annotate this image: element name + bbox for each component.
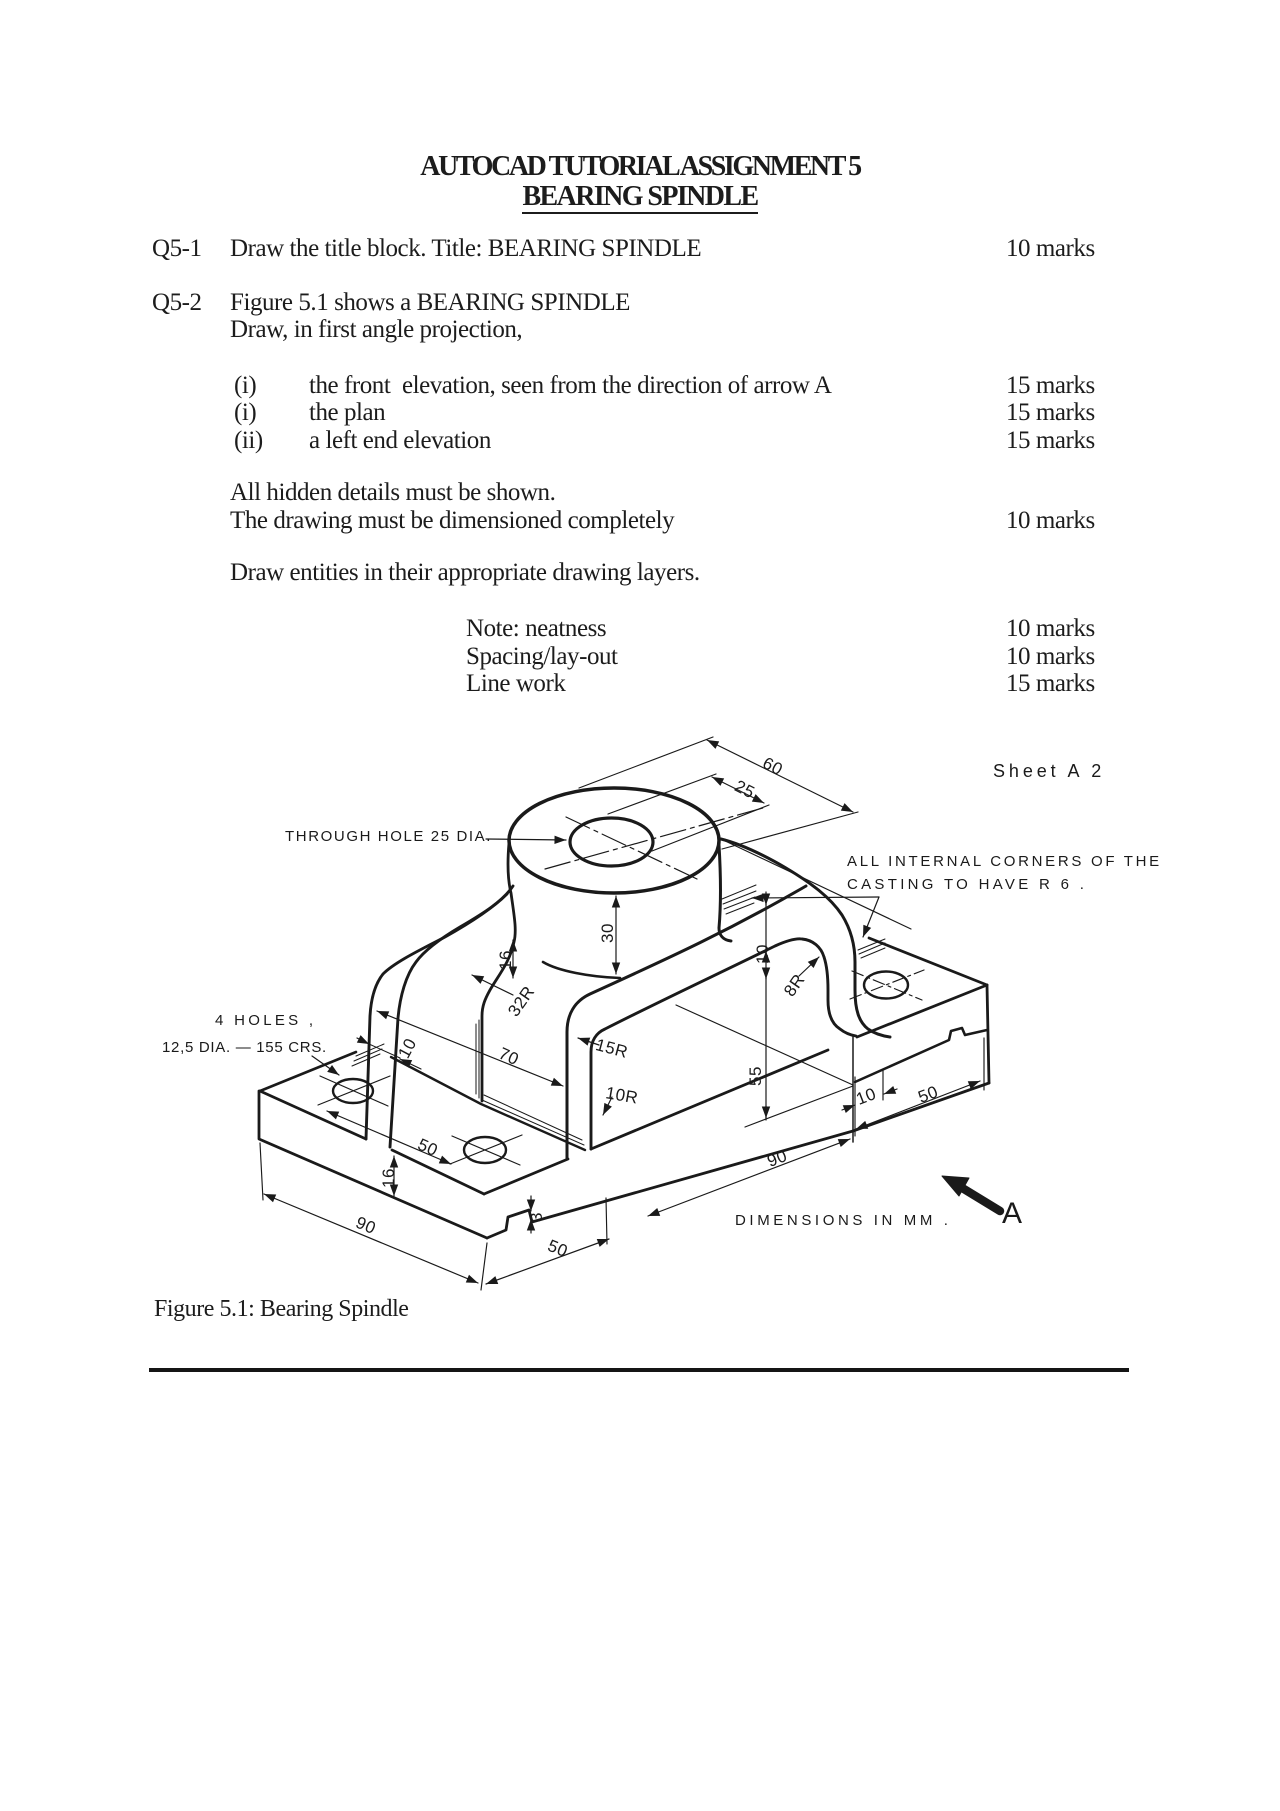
svg-text:50: 50 xyxy=(415,1135,441,1160)
svg-text:15R: 15R xyxy=(594,1035,630,1062)
svg-text:10: 10 xyxy=(753,944,772,964)
svg-text:A: A xyxy=(1002,1197,1022,1230)
svg-text:CASTING TO HAVE R 6 .: CASTING TO HAVE R 6 . xyxy=(847,876,1087,893)
svg-text:ALL INTERNAL CORNERS OF TH: ALL INTERNAL CORNERS OF THE xyxy=(847,853,1162,870)
svg-text:55: 55 xyxy=(746,1066,765,1086)
svg-text:50: 50 xyxy=(545,1236,571,1261)
svg-text:10: 10 xyxy=(854,1084,879,1109)
svg-text:8R: 8R xyxy=(780,970,809,1000)
svg-text:THROUGH HOLE 25 DIA.: THROUGH HOLE 25 DIA. xyxy=(285,828,492,845)
svg-text:60: 60 xyxy=(760,753,786,779)
svg-text:Sheet A 2: Sheet A 2 xyxy=(993,761,1105,781)
svg-text:50: 50 xyxy=(916,1082,941,1107)
svg-text:DIMENSIONS IN MM .: DIMENSIONS IN MM . xyxy=(735,1212,951,1229)
svg-text:10R: 10R xyxy=(604,1083,639,1107)
svg-text:3: 3 xyxy=(527,1212,546,1222)
svg-text:90: 90 xyxy=(353,1213,379,1238)
svg-text:32R: 32R xyxy=(504,982,538,1020)
svg-text:16: 16 xyxy=(379,1168,398,1188)
svg-text:12,5 DIA. — 155 CRS.: 12,5 DIA. — 155 CRS. xyxy=(162,1039,327,1056)
svg-text:30: 30 xyxy=(598,923,617,943)
svg-text:70: 70 xyxy=(496,1044,522,1069)
svg-text:16: 16 xyxy=(496,950,515,970)
svg-text:4 HOLES ,: 4 HOLES , xyxy=(215,1012,316,1029)
